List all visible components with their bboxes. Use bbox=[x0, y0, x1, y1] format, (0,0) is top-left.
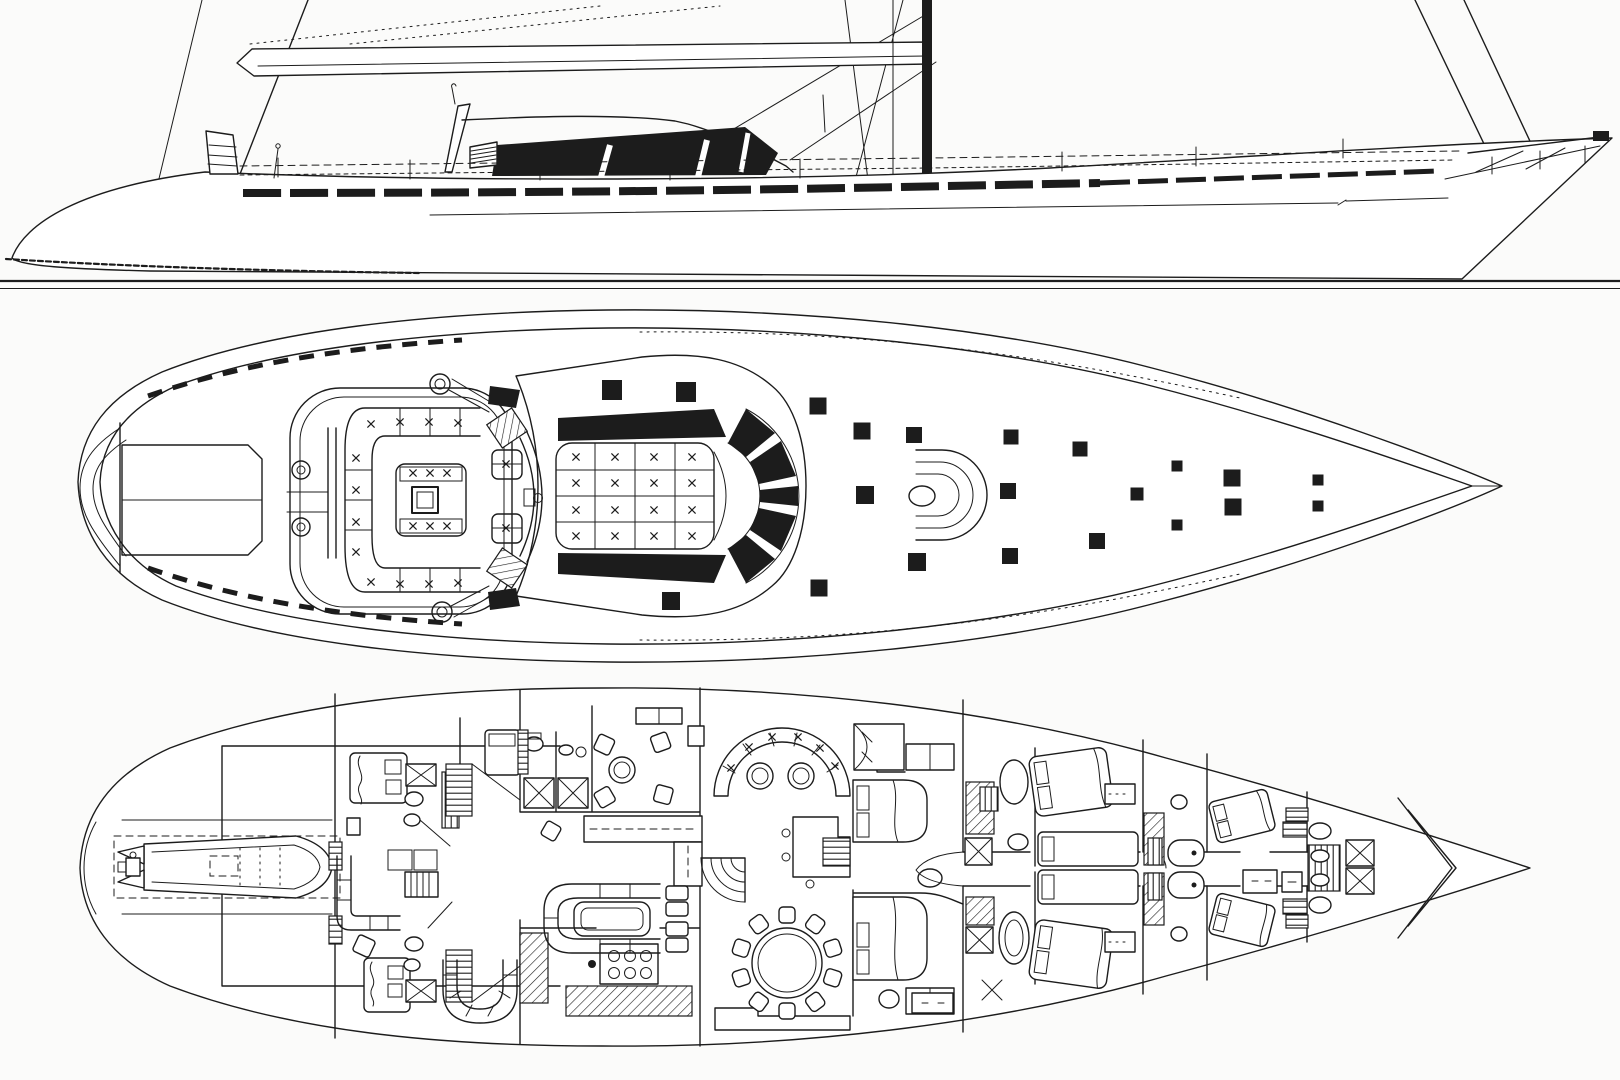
waterline bbox=[0, 281, 1620, 289]
hull-profile bbox=[12, 138, 1612, 279]
drawing-sheet bbox=[0, 0, 1620, 1080]
locker bbox=[1283, 822, 1307, 837]
aft-antenna bbox=[823, 95, 825, 132]
basin bbox=[1171, 795, 1187, 809]
stool bbox=[653, 784, 674, 805]
profile-view bbox=[0, 0, 1620, 289]
vang bbox=[790, 62, 936, 160]
deck-plan-view bbox=[78, 310, 1502, 662]
mainsheet bbox=[727, 12, 930, 133]
steps bbox=[329, 842, 342, 870]
windscreen-post bbox=[445, 104, 470, 172]
steps bbox=[1286, 808, 1308, 821]
cockpit-stairs bbox=[446, 950, 472, 1002]
stern-platform bbox=[206, 131, 280, 178]
basin bbox=[404, 959, 420, 971]
backstay bbox=[233, 0, 308, 192]
window-band bbox=[492, 127, 778, 176]
deckhouse-profile bbox=[445, 84, 825, 177]
outboard-motor bbox=[126, 858, 140, 876]
deck-hull-outline bbox=[78, 310, 1502, 662]
toilet bbox=[1309, 823, 1331, 839]
mast bbox=[922, 0, 932, 178]
anchor-roller bbox=[1593, 131, 1609, 141]
cabinet bbox=[688, 726, 704, 746]
steps bbox=[1286, 915, 1308, 928]
steps bbox=[329, 916, 342, 944]
runner-stay bbox=[852, 0, 903, 192]
basin bbox=[559, 745, 573, 755]
counter bbox=[566, 986, 692, 1016]
tv-cabinet bbox=[854, 724, 904, 770]
bathtub bbox=[1000, 760, 1028, 804]
corridor-seat bbox=[1243, 870, 1277, 893]
knob bbox=[588, 960, 596, 968]
cockpit-stairs bbox=[446, 764, 472, 816]
toilet bbox=[1309, 897, 1331, 913]
counter bbox=[520, 933, 548, 1003]
stool bbox=[879, 990, 899, 1008]
floor-grating bbox=[518, 730, 528, 774]
double-bed bbox=[853, 897, 927, 980]
locker bbox=[1283, 899, 1307, 914]
bench bbox=[912, 993, 953, 1013]
flag-halyard bbox=[157, 0, 202, 187]
double-bed bbox=[853, 780, 927, 842]
runner-stay bbox=[845, 0, 869, 188]
toilet bbox=[405, 792, 423, 806]
lazyjacks bbox=[250, 6, 720, 44]
chair bbox=[347, 818, 360, 835]
basin bbox=[404, 814, 420, 826]
boom bbox=[237, 42, 930, 76]
antenna bbox=[452, 84, 456, 104]
bathtub bbox=[1168, 840, 1204, 866]
toilet bbox=[1008, 834, 1028, 850]
basin bbox=[1171, 927, 1187, 941]
twin-bed bbox=[1028, 747, 1114, 817]
ga-drawing bbox=[0, 0, 1620, 1080]
accommodation-view bbox=[80, 688, 1530, 1046]
toilet bbox=[405, 937, 423, 951]
bathtub bbox=[1168, 872, 1204, 898]
